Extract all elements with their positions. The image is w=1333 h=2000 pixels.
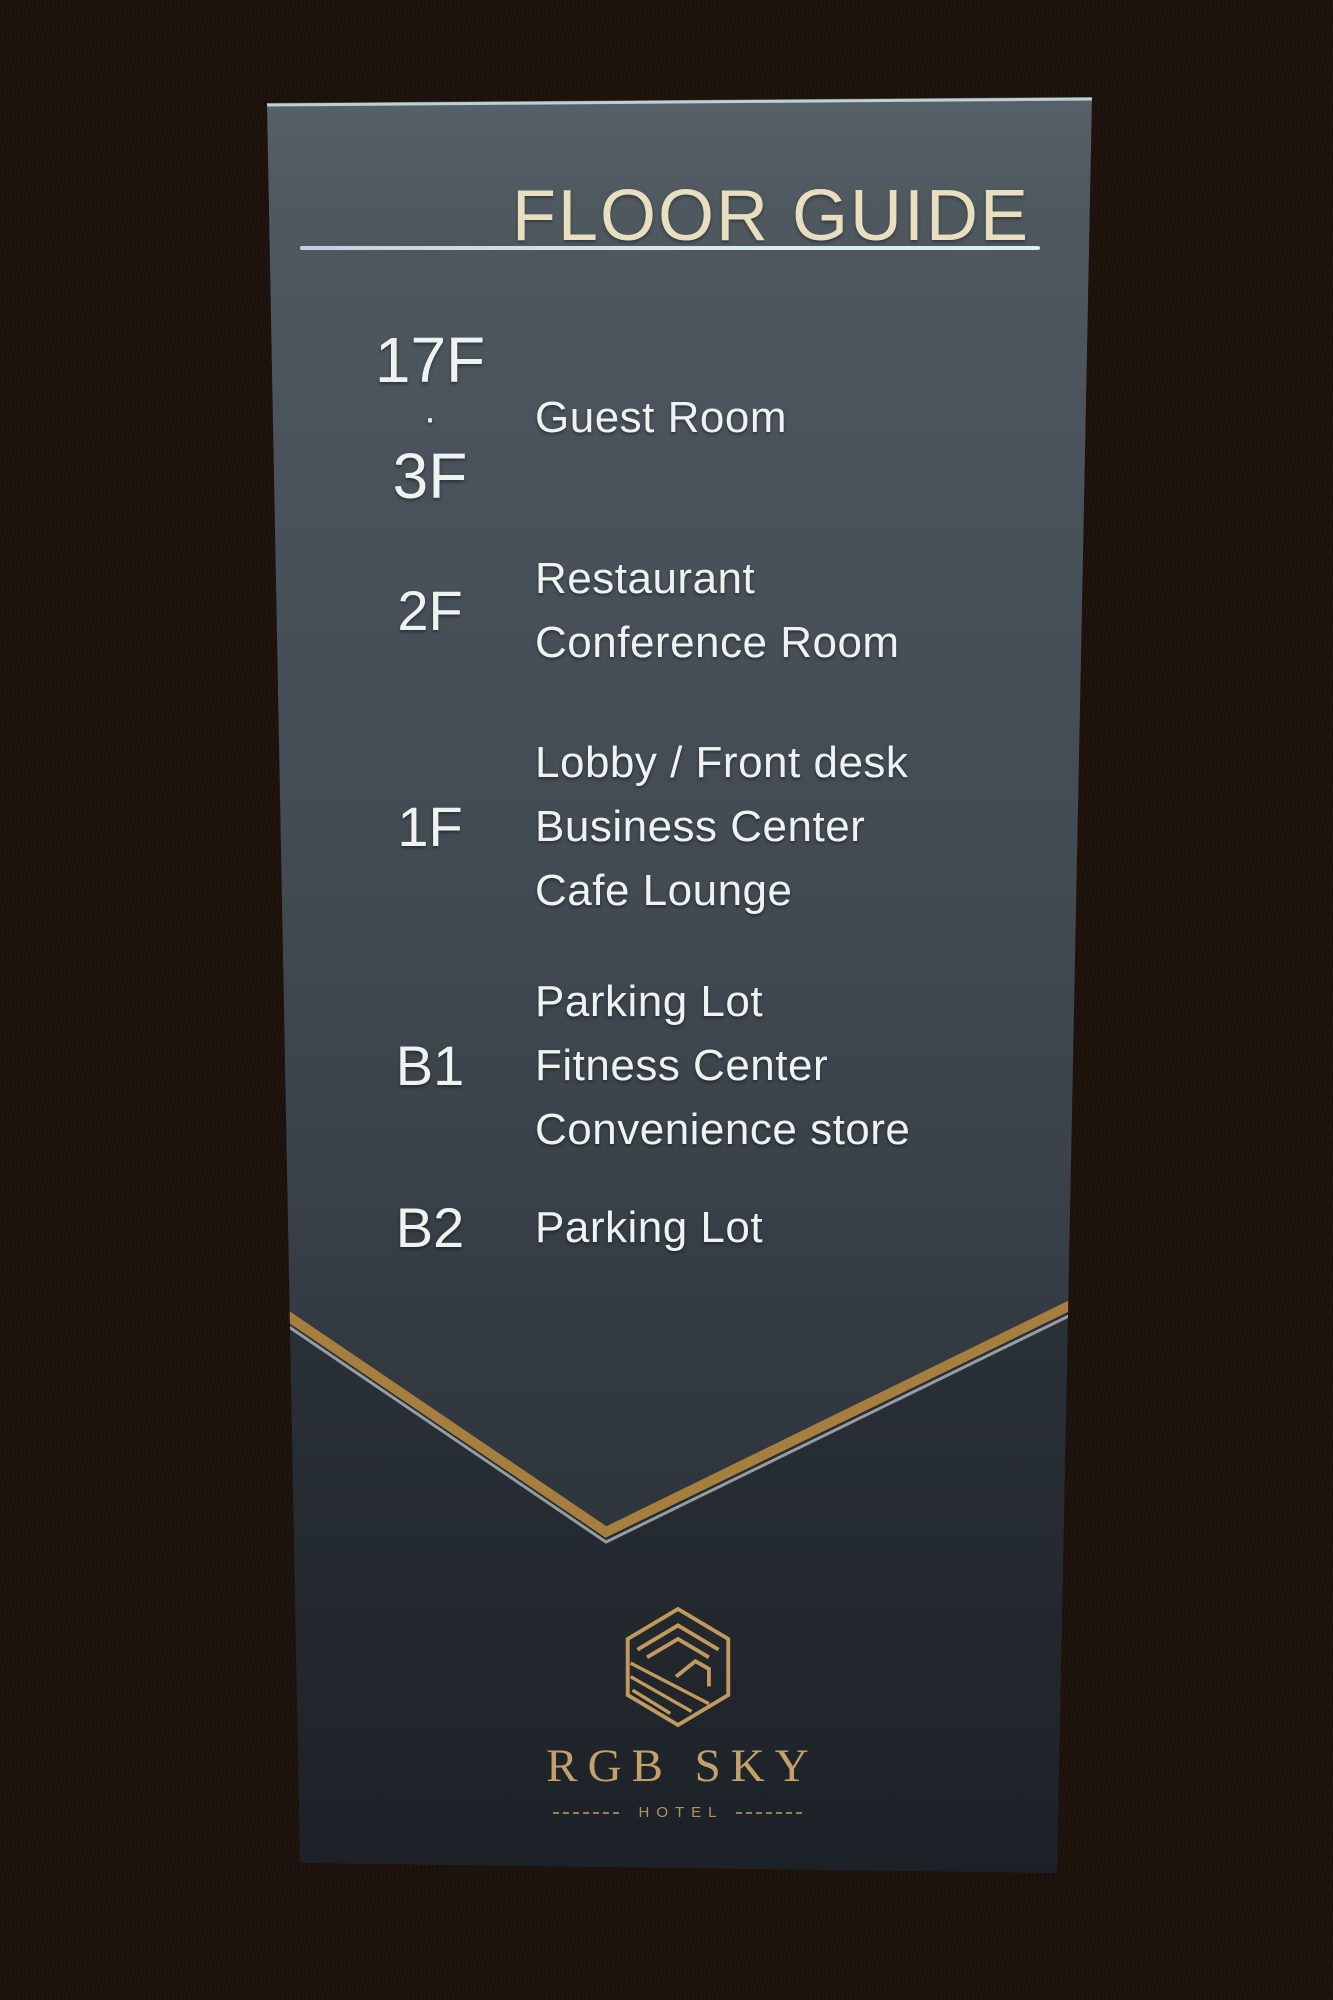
floor-number: B1 bbox=[365, 1034, 495, 1098]
floor-row-1f: 1F Lobby / Front desk Business Center Ca… bbox=[365, 731, 1065, 923]
floor-row-guest-rooms: 17F · 3F Guest Room bbox=[365, 325, 1065, 511]
floor-label: Convenience store bbox=[535, 1098, 910, 1162]
floor-number: 1F bbox=[365, 795, 495, 859]
floor-number-text: B2 bbox=[365, 1196, 495, 1260]
floor-number: B2 bbox=[365, 1196, 495, 1260]
floor-label: Business Center bbox=[535, 795, 908, 859]
floor-number-text: B1 bbox=[365, 1034, 495, 1098]
floor-number-text: 2F bbox=[365, 579, 495, 643]
hotel-tagline-row: HOTEL bbox=[255, 1804, 1100, 1821]
floor-range-dot: · bbox=[365, 395, 495, 441]
floor-label: Conference Room bbox=[535, 611, 900, 675]
title-underline bbox=[300, 246, 1040, 250]
floor-label: Parking Lot bbox=[535, 1196, 763, 1260]
photo-scene: FLOOR GUIDE 17F · 3F Guest Room 2F Resta… bbox=[0, 0, 1333, 2000]
hotel-name: RGB SKY bbox=[255, 1740, 1100, 1792]
tagline-dash-right bbox=[736, 1812, 802, 1814]
floor-row-b1: B1 Parking Lot Fitness Center Convenienc… bbox=[365, 970, 1065, 1162]
floor-row-2f: 2F Restaurant Conference Room bbox=[365, 547, 1065, 675]
hotel-logo-hexagon-icon bbox=[620, 1605, 736, 1729]
hotel-brand: RGB SKY HOTEL bbox=[255, 1605, 1100, 1821]
floor-labels: Parking Lot Fitness Center Convenience s… bbox=[535, 970, 910, 1162]
floor-labels: Parking Lot bbox=[535, 1196, 763, 1260]
floor-number-range: 17F · 3F bbox=[365, 325, 495, 511]
floor-row-b2: B2 Parking Lot bbox=[365, 1196, 1065, 1260]
floor-label: Cafe Lounge bbox=[535, 859, 908, 923]
floor-number: 2F bbox=[365, 579, 495, 643]
floor-label: Restaurant bbox=[535, 547, 900, 611]
floor-number-bottom: 3F bbox=[365, 441, 495, 511]
logo-inner-facet bbox=[676, 1661, 709, 1686]
floor-label: Lobby / Front desk bbox=[535, 731, 908, 795]
floor-number-text: 1F bbox=[365, 795, 495, 859]
tagline-dash-left bbox=[553, 1812, 619, 1814]
sign-title: FLOOR GUIDE bbox=[512, 180, 1030, 252]
floor-list: 17F · 3F Guest Room 2F Restaurant Confer… bbox=[365, 325, 1065, 1260]
floor-labels: Lobby / Front desk Business Center Cafe … bbox=[535, 731, 908, 923]
floor-labels: Guest Room bbox=[535, 386, 787, 450]
logo-inner-chevron-2 bbox=[647, 1639, 709, 1657]
hotel-tagline: HOTEL bbox=[631, 1804, 723, 1821]
floor-guide-sign: FLOOR GUIDE 17F · 3F Guest Room 2F Resta… bbox=[255, 90, 1100, 1880]
floor-label: Fitness Center bbox=[535, 1034, 910, 1098]
floor-labels: Restaurant Conference Room bbox=[535, 547, 900, 675]
floor-label: Parking Lot bbox=[535, 970, 910, 1034]
floor-label: Guest Room bbox=[535, 386, 787, 450]
floor-number-top: 17F bbox=[365, 325, 495, 395]
